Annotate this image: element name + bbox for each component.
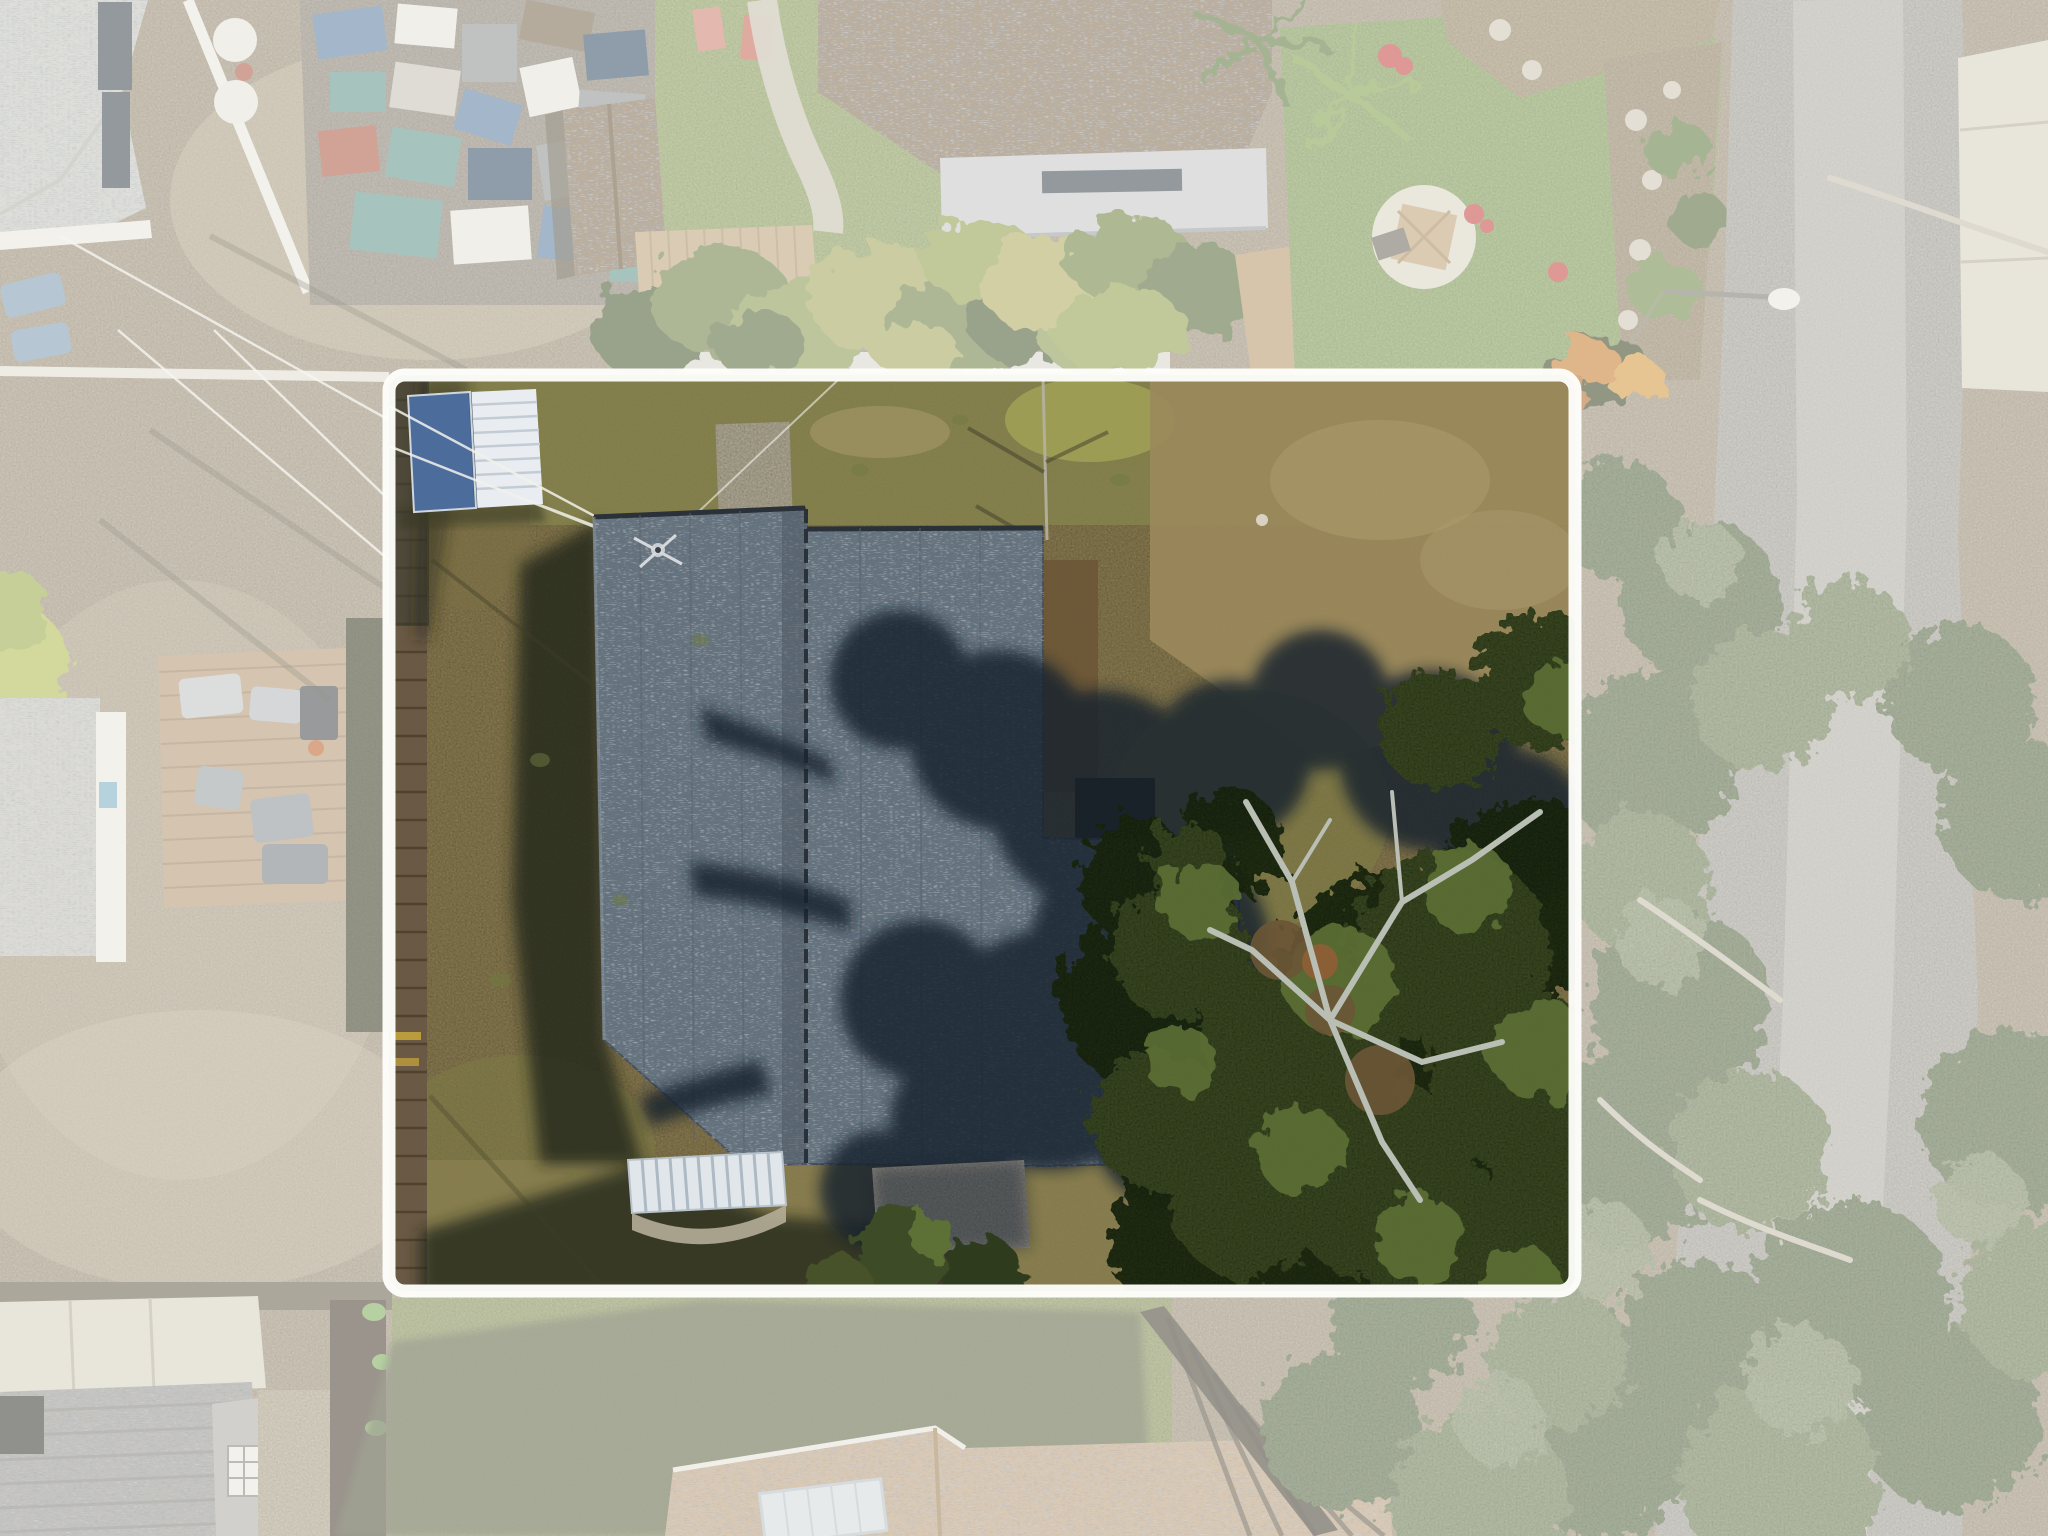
metal-awning (628, 1152, 786, 1244)
roof-gutter-edge (807, 528, 1043, 529)
subject-lot (385, 375, 1640, 1370)
white-rock (1256, 514, 1268, 526)
shed-roof-white-panel (470, 389, 543, 508)
shed-roof-blue-panel (408, 392, 476, 512)
dry-patch (1420, 510, 1580, 610)
aerial-photo (0, 0, 2048, 1536)
awning-surface (628, 1152, 786, 1213)
concrete-remnant-pad (715, 422, 792, 517)
ridge-cap-column (782, 510, 806, 1164)
dry-patch (810, 406, 950, 458)
grass-yellow-patch (1005, 378, 1175, 462)
